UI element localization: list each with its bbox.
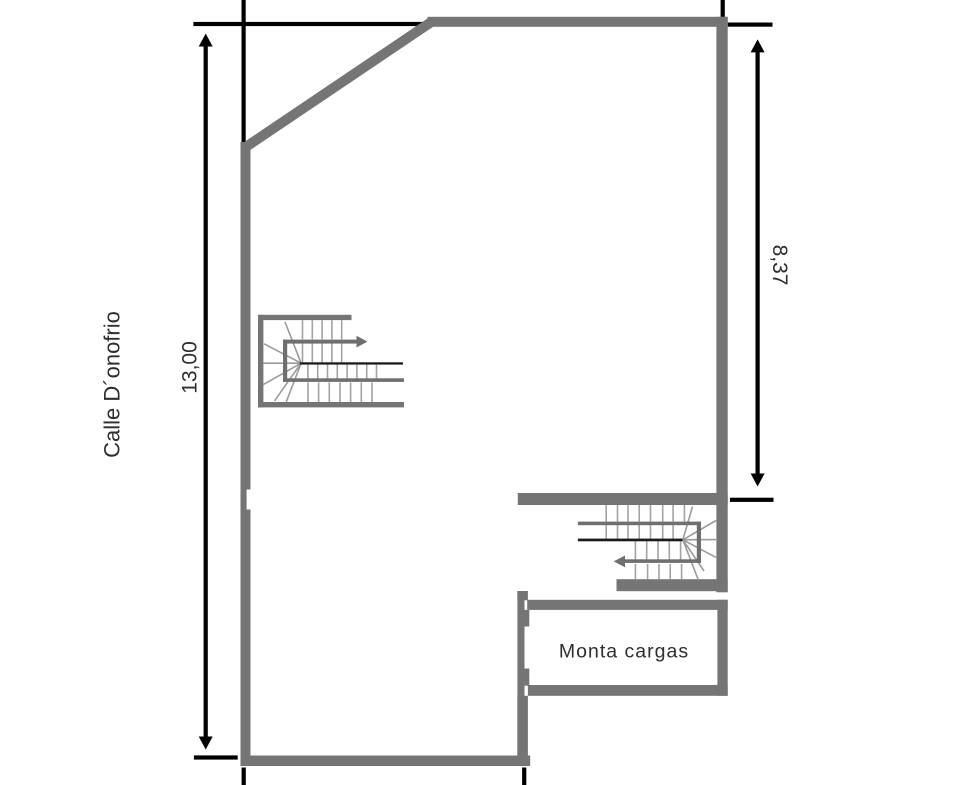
svg-text:13,00: 13,00 xyxy=(178,341,201,394)
svg-text:Calle D´onofrio: Calle D´onofrio xyxy=(100,311,125,458)
svg-text:Monta cargas: Monta cargas xyxy=(559,640,689,662)
svg-text:8,37: 8,37 xyxy=(768,245,791,286)
